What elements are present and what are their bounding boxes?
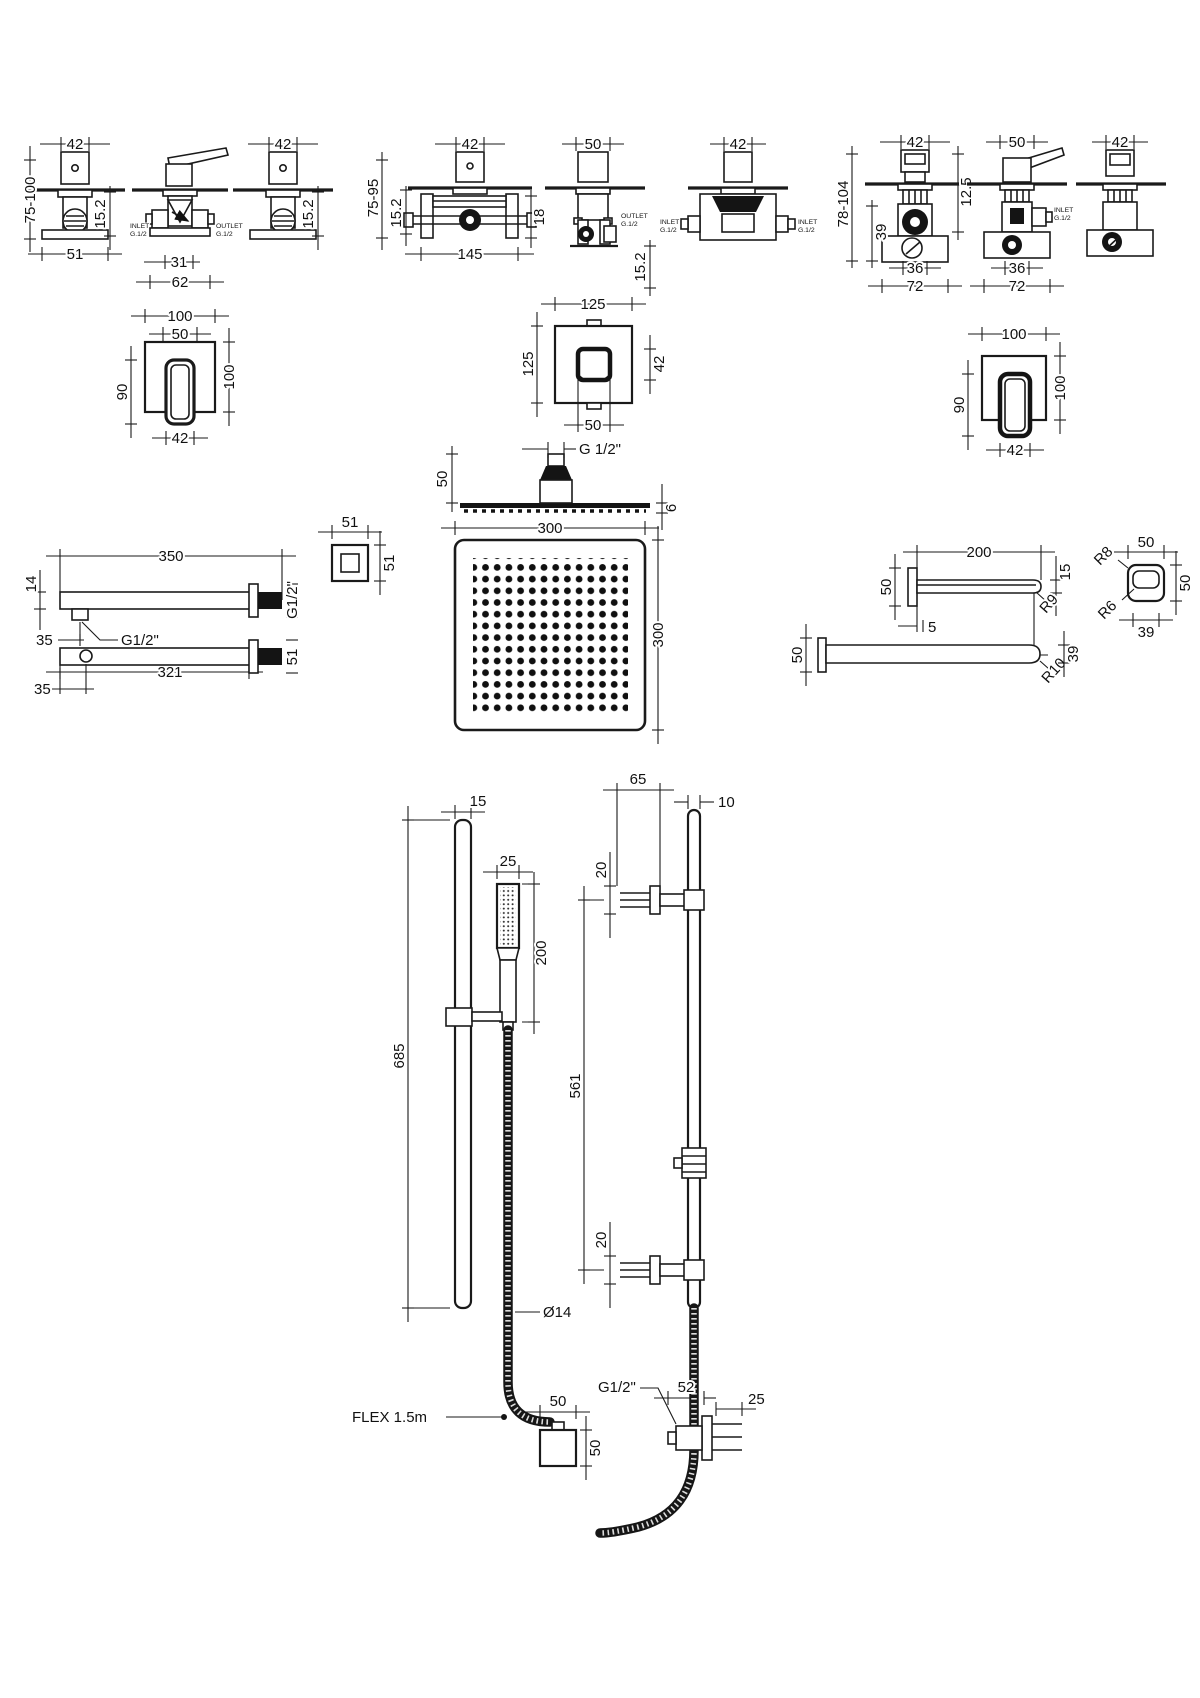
label-outlet-thread: G.1/2: [216, 231, 233, 238]
label-inlet-left: INLET: [660, 219, 679, 226]
dim-panel: 15.2: [388, 198, 405, 227]
dim-plate: 5: [928, 619, 936, 636]
dim-panel: 15.2: [300, 199, 317, 228]
dim-base: 145: [457, 246, 482, 263]
label-inlet-right-thread: G.1/2: [798, 227, 815, 234]
dim-depth: 78-104: [835, 181, 852, 228]
dim-length: 200: [966, 544, 991, 561]
dim-end-width: 50: [1138, 534, 1155, 551]
dim-end-inner: 39: [1138, 624, 1155, 641]
dim-panel: 15.2: [632, 252, 649, 281]
valve-a1-front-view: 42 75-100 15.2 51: [22, 136, 125, 263]
dim-flange: 50: [878, 579, 895, 596]
dim-inner: 31: [171, 254, 188, 271]
label-radius-inner: R6: [1095, 597, 1121, 623]
dim-flange: 51: [284, 649, 301, 666]
dim-width: 42: [1112, 134, 1129, 151]
label-radius-outer: R8: [1091, 543, 1117, 569]
dim-inner: 50: [585, 417, 602, 434]
valve-b2-front-view: 50 OUTLET G.1/2 15.2: [545, 136, 656, 296]
dim-width: 50: [585, 136, 602, 153]
dim-height: 100: [221, 364, 238, 389]
dim-side: 18: [531, 209, 548, 226]
dim-hose-diameter: Ø14: [543, 1304, 571, 1321]
dim-base-inner: 36: [907, 260, 924, 277]
dim-tip: 15: [1057, 564, 1074, 581]
label-elbow-thread: G1/2": [598, 1379, 636, 1396]
label-inlet-thread: G.1/2: [1054, 215, 1071, 222]
dim-width: 42: [907, 134, 924, 151]
dim-end-height: 50: [1177, 575, 1194, 592]
shower-head-face-view: 300 300: [441, 520, 667, 744]
dim-face-height: 300: [650, 622, 667, 647]
label-inlet: INLET: [1054, 207, 1073, 214]
dim-length: 350: [158, 548, 183, 565]
handset-spray-face: [500, 887, 516, 945]
valve-a2-side-view: INLET G.1/2 OUTLET G.1/2 31 62: [130, 148, 243, 291]
label-inlet-right: INLET: [798, 219, 817, 226]
dim-base: 72: [907, 278, 924, 295]
dim-rail-thickness: 10: [718, 794, 735, 811]
label-inlet: INLET: [130, 223, 149, 230]
valve-c2-front-view: 50 INLET G.1/2 36 72: [967, 134, 1073, 295]
label-tip-radius: R9: [1036, 591, 1061, 617]
dim-depth: 75-95: [365, 179, 382, 217]
valve-a3-front-view: 42 15.2: [233, 136, 333, 250]
technical-drawing-sheet: 42 75-100 15.2 51 INLET G.1/2 OUTLET G.1…: [0, 0, 1200, 1698]
valve-c1-front-view: 42 78-104 39 12.5 36 72: [835, 134, 975, 295]
dim-width: 42: [730, 136, 747, 153]
dim-bracket-bottom: 20: [593, 1232, 610, 1249]
dim-hole-offset: 35: [34, 681, 51, 698]
dim-knob: 42: [651, 356, 668, 373]
dim-base: 72: [1009, 278, 1026, 295]
dim-bracket-span: 561: [567, 1073, 584, 1098]
dim-height: 125: [520, 351, 537, 376]
dim-handle-height: 90: [951, 397, 968, 414]
dim-end-height: 51: [381, 555, 398, 572]
dim-end-width: 51: [342, 514, 359, 531]
hand-shower-hose: [508, 1030, 550, 1422]
hose-side-view: [600, 1308, 694, 1533]
plate-p1-front-view: 100 50 90 100 42: [114, 308, 238, 447]
dim-bracket-top: 20: [593, 862, 610, 879]
label-thread: G1/2": [121, 632, 159, 649]
dim-bar-height: 39: [1065, 646, 1082, 663]
shower-head-side-view: G 1/2" 50 6: [434, 441, 680, 530]
label-thread: G 1/2": [579, 441, 621, 458]
slide-rail-side-view: 65 10 20 561 20 52 25 G1/2": [567, 771, 765, 1533]
label-outlet-thread: G.1/2: [621, 221, 638, 228]
dim-outlet-height: 50: [587, 1440, 604, 1457]
dim-width: 42: [67, 136, 84, 153]
dim-outer: 62: [172, 274, 189, 291]
dim-offset: 39: [873, 224, 890, 241]
label-inlet-left-thread: G.1/2: [660, 227, 677, 234]
plate-p2-front-view: 125 125 42 50: [520, 296, 668, 434]
dim-bracket-reach: 65: [630, 771, 647, 788]
label-outlet: OUTLET: [621, 213, 648, 220]
label-outlet: OUTLET: [216, 223, 243, 230]
valve-c3-front-view: 42: [1076, 134, 1166, 256]
dim-handle-height: 90: [114, 384, 131, 401]
dim-rail-length: 685: [391, 1043, 408, 1068]
dim-handle-width: 42: [1007, 442, 1024, 459]
label-inlet-thread: G.1/2: [130, 231, 147, 238]
arm-right-end-view: 50 R8 R6 50 39: [1091, 534, 1194, 641]
dim-base: 51: [67, 246, 84, 263]
label-thread-out: G1/2": [284, 581, 301, 619]
dim-outlet-width: 50: [550, 1393, 567, 1410]
drawing-canvas: 42 75-100 15.2 51 INLET G.1/2 OUTLET G.1…: [0, 0, 1200, 1698]
dim-elbow-width: 52: [678, 1379, 695, 1396]
dim-length-lower: 321: [157, 664, 182, 681]
dim-width: 125: [580, 296, 605, 313]
dim-handset-width: 25: [500, 853, 517, 870]
arm-left-end-view: 51 51: [318, 514, 398, 595]
nozzle-grid: [473, 558, 628, 713]
dim-thickness: 6: [663, 504, 680, 512]
slide-rail-front-view: 15 685 25 200 Ø14 FLEX 1.5m 50 50: [352, 793, 604, 1480]
plate-p3-front-view: 100 90 100 42: [951, 326, 1069, 459]
dim-mount-height: 50: [434, 471, 451, 488]
dim-elbow-depth: 25: [748, 1391, 765, 1408]
dim-width: 100: [1001, 326, 1026, 343]
dim-panel: 15.2: [92, 199, 109, 228]
dim-inner: 50: [172, 326, 189, 343]
label-flex-length: FLEX 1.5m: [352, 1409, 427, 1426]
dim-height: 100: [1052, 375, 1069, 400]
dim-face-width: 300: [537, 520, 562, 537]
dim-handle-width: 42: [172, 430, 189, 447]
dim-width: 42: [275, 136, 292, 153]
dim-width: 50: [1009, 134, 1026, 151]
dim-rail-width: 15: [470, 793, 487, 810]
dim-width: 100: [167, 308, 192, 325]
valve-b1-front-view: 42 75-95 15.2 18 145: [365, 136, 548, 263]
valve-b3-front-view: 42 INLET G.1/2 INLET G.1/2: [660, 136, 817, 240]
dim-flange: 50: [789, 647, 806, 664]
dim-base-inner: 36: [1009, 260, 1026, 277]
dim-depth: 75-100: [22, 177, 39, 224]
dim-drop: 14: [23, 576, 40, 593]
dim-handset-length: 200: [533, 940, 550, 965]
dim-panel: 12.5: [958, 177, 975, 206]
dim-tab-offset: 35: [36, 632, 53, 649]
dim-width: 42: [462, 136, 479, 153]
